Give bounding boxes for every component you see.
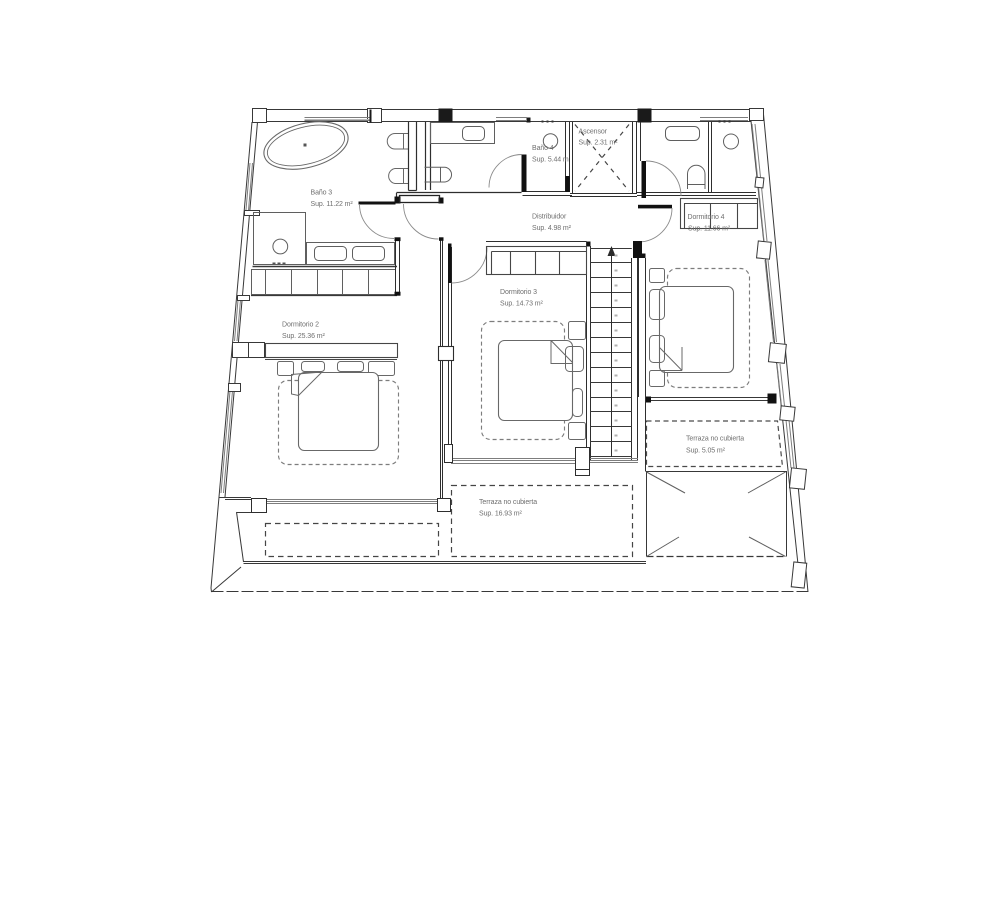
svg-text:Dormitorio 4: Dormitorio 4 — [688, 214, 725, 221]
svg-text:Dormitorio 3: Dormitorio 3 — [500, 289, 537, 296]
svg-text:Baño 4: Baño 4 — [532, 145, 554, 152]
svg-text:Dormitorio 2: Dormitorio 2 — [282, 322, 319, 329]
svg-text:Sup. 4.98 m²: Sup. 4.98 m² — [532, 225, 572, 232]
svg-text:Terraza no cubierta: Terraza no cubierta — [686, 436, 744, 443]
svg-text:Ascensor: Ascensor — [579, 129, 608, 136]
svg-text:Terraza no cubierta: Terraza no cubierta — [479, 499, 537, 506]
svg-text:Sup. 25.36 m²: Sup. 25.36 m² — [282, 333, 325, 340]
svg-text:Sup. 16.93 m²: Sup. 16.93 m² — [479, 511, 522, 518]
svg-text:Baño 3: Baño 3 — [311, 190, 333, 197]
svg-text:Sup. 14.73 m²: Sup. 14.73 m² — [500, 301, 543, 308]
svg-text:Sup. 11.22 m²: Sup. 11.22 m² — [311, 201, 354, 208]
svg-text:Sup. 5.05 m²: Sup. 5.05 m² — [686, 448, 726, 455]
svg-text:Sup. 11.66 m²: Sup. 11.66 m² — [688, 226, 731, 233]
svg-text:Sup. 2.31 m²: Sup. 2.31 m² — [579, 140, 619, 147]
svg-text:Distribuidor: Distribuidor — [532, 214, 567, 221]
svg-text:Sup. 5.44 m: Sup. 5.44 m — [532, 157, 569, 164]
